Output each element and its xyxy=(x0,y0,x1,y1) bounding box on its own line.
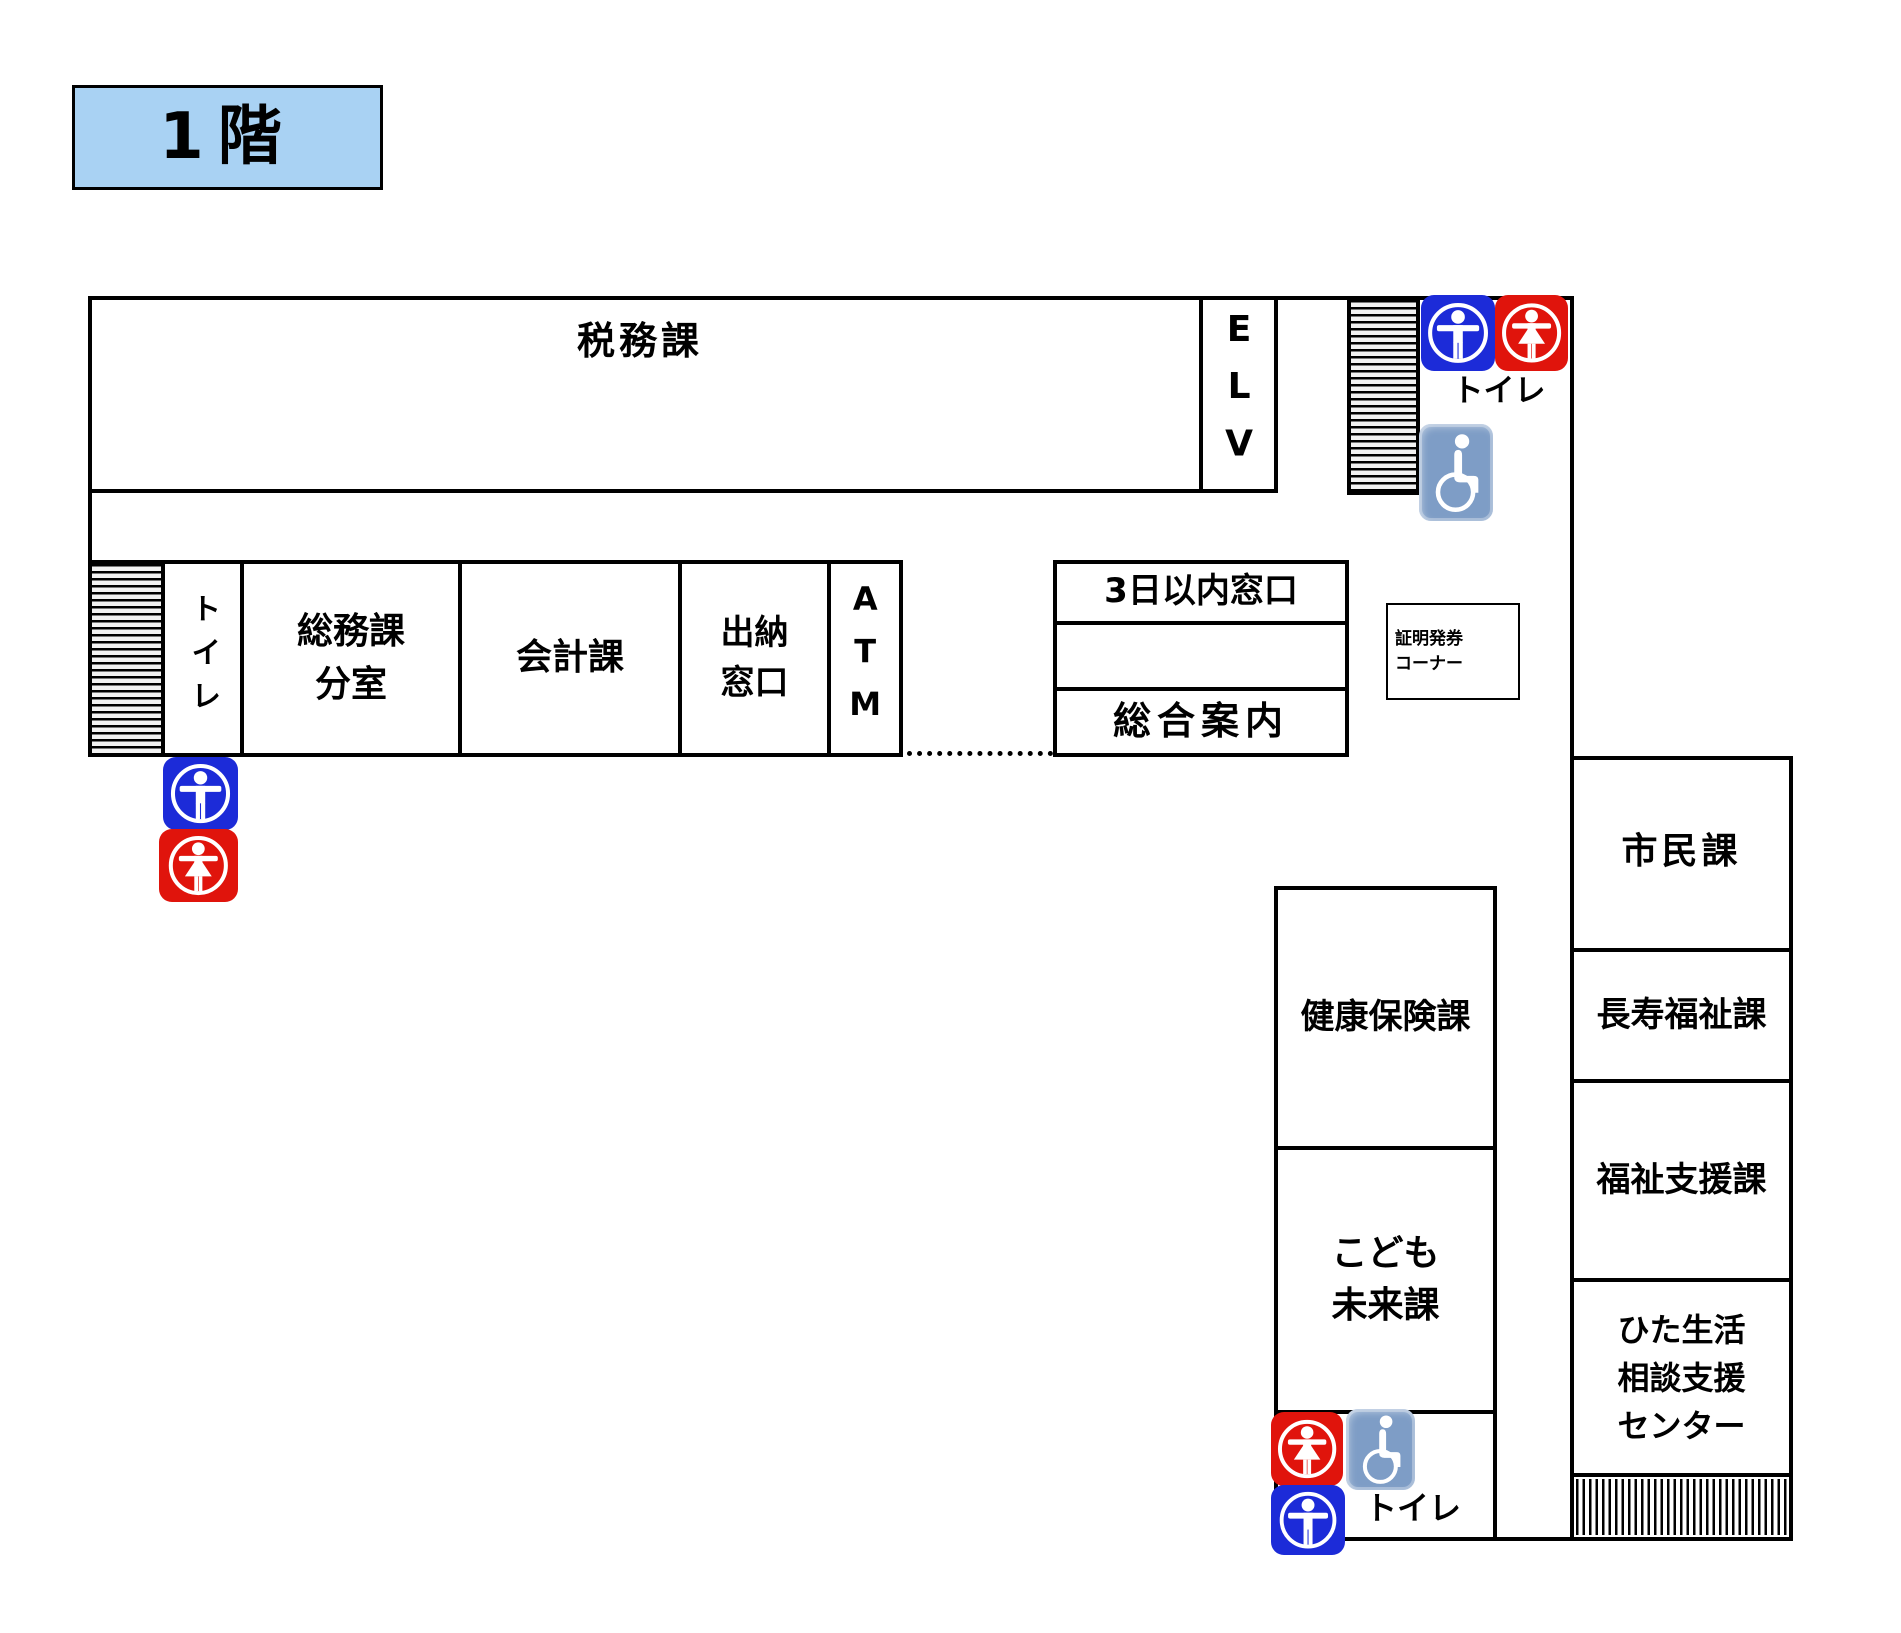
female-restroom-icon xyxy=(1271,1412,1343,1486)
three-day-window-label: 3日以内窓口 xyxy=(1053,560,1349,623)
room-atm-label: ATM xyxy=(831,566,899,751)
room-children-future-label: こども 未来課 xyxy=(1274,1150,1497,1410)
female-restroom-icon xyxy=(159,829,238,902)
room-health-insurance-label: 健康保険課 xyxy=(1274,890,1497,1146)
room-welfare-support-label: 福祉支援課 xyxy=(1570,1083,1793,1278)
female-restroom-icon xyxy=(1495,295,1568,371)
wheelchair-accessible-icon xyxy=(1346,1409,1415,1490)
stairs-bottom-right xyxy=(1576,1479,1787,1535)
male-restroom-icon xyxy=(163,757,238,830)
wheelchair-accessible-icon xyxy=(1419,424,1493,521)
room-toilet-left-label: トイレ xyxy=(165,566,240,751)
room-cashier-window-label: 出納 窓口 xyxy=(682,560,827,757)
toilet-bottom-label: トイレ xyxy=(1348,1486,1478,1530)
wall-left-segment xyxy=(88,489,92,564)
wall-bottom-segment xyxy=(1493,1537,1574,1541)
toilet-top-label: トイレ xyxy=(1436,370,1562,412)
room-general-affairs-annex-label: 総務課 分室 xyxy=(244,560,458,757)
room-accounting-label: 会計課 xyxy=(462,560,678,757)
stairs-top-right xyxy=(1347,296,1420,495)
room-elevator-label: ELV xyxy=(1199,300,1278,489)
wall-divider xyxy=(1570,1473,1793,1477)
floor-title-box: 1階 xyxy=(72,85,383,190)
room-hita-life-support-label: ひた生活 相談支援 センター xyxy=(1570,1282,1793,1473)
floor-plan-first-floor: 1階 税務課 ELV トイレ トイレ 総務課 分室 会計課 出納 窓口 ATM … xyxy=(0,0,1901,1633)
dotted-boundary xyxy=(907,751,1053,756)
certificate-corner-label: 証明発券 コーナー xyxy=(1395,609,1513,694)
male-restroom-icon xyxy=(1421,295,1495,371)
room-longevity-welfare-label: 長寿福祉課 xyxy=(1570,952,1793,1079)
floor-title: 1階 xyxy=(159,91,296,184)
stairs-left xyxy=(88,560,165,757)
general-information-label: 総合案内 xyxy=(1053,689,1349,755)
room-citizens-label: 市民課 xyxy=(1570,756,1793,948)
room-tax-division-label: 税務課 xyxy=(190,287,1090,397)
male-restroom-icon xyxy=(1271,1485,1345,1555)
